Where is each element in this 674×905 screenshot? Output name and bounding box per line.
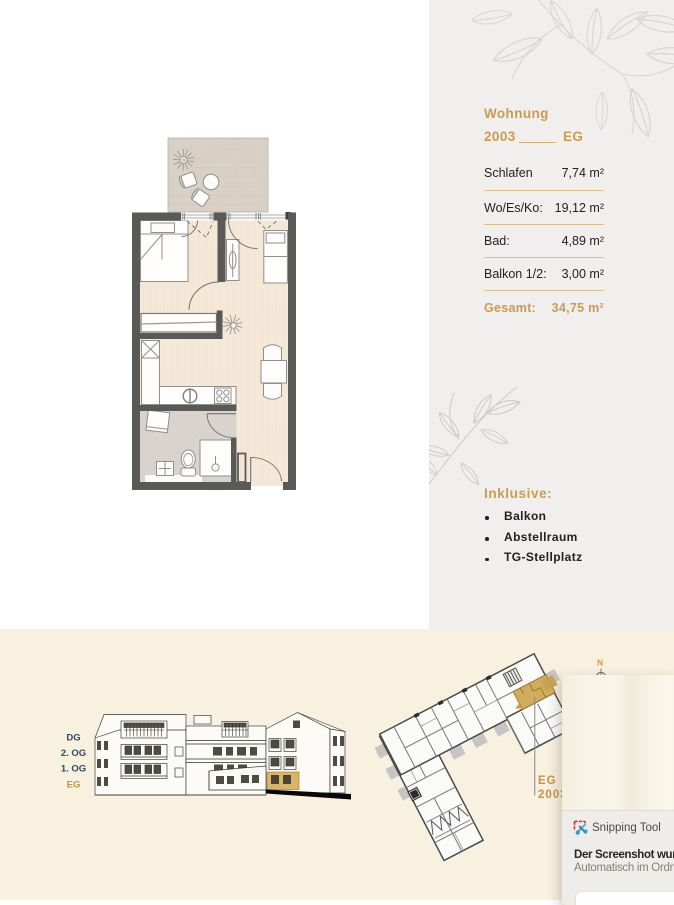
svg-text:1. OG: 1. OG xyxy=(61,764,86,775)
svg-text:DG: DG xyxy=(66,733,80,744)
svg-text:EG: EG xyxy=(67,780,81,791)
svg-text:N: N xyxy=(597,658,603,668)
svg-text:2. OG: 2. OG xyxy=(61,748,86,759)
svg-text:EG: EG xyxy=(538,775,557,787)
